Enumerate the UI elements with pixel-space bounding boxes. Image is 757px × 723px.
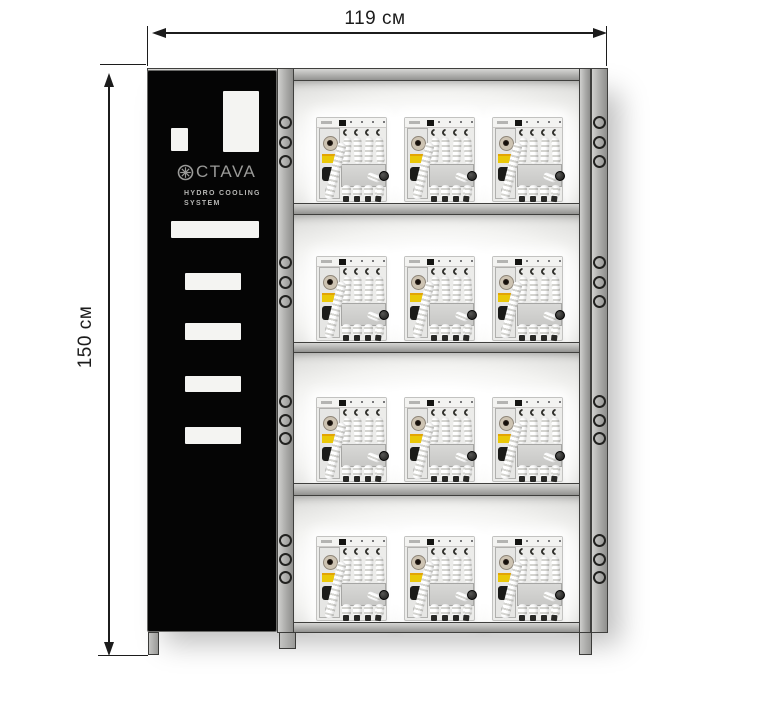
rack-bay bbox=[294, 81, 579, 203]
hose-fitting bbox=[463, 196, 470, 203]
valve-knob bbox=[467, 171, 477, 181]
hose-fitting bbox=[365, 615, 371, 621]
coil-hose-bottom bbox=[374, 185, 384, 199]
coil-hose-top bbox=[452, 276, 461, 303]
valve-knob bbox=[467, 451, 477, 461]
coil-hose-top bbox=[540, 137, 549, 164]
hose-fitting bbox=[453, 615, 459, 621]
top-rivet bbox=[361, 540, 363, 542]
top-rivet bbox=[526, 540, 528, 542]
coil-hose-bottom bbox=[540, 324, 549, 337]
coil-hose-bottom bbox=[364, 604, 373, 617]
hose-fitting bbox=[375, 335, 382, 342]
top-rivet bbox=[460, 540, 462, 542]
mounting-hole bbox=[593, 276, 606, 289]
mounting-hole bbox=[279, 136, 292, 149]
valve-knob bbox=[555, 171, 565, 181]
hose-fitting bbox=[551, 196, 558, 203]
hose-fitting bbox=[519, 335, 525, 341]
vent-slot bbox=[185, 427, 241, 444]
coil-symbol bbox=[353, 267, 363, 277]
coil-hose-bottom bbox=[430, 604, 439, 617]
top-rivet bbox=[361, 401, 363, 403]
coil-hose-bottom bbox=[342, 185, 351, 198]
valve-knob bbox=[379, 451, 389, 461]
width-dimension-line bbox=[158, 32, 598, 34]
rack-post-left bbox=[277, 68, 294, 633]
coil-hose-top bbox=[463, 417, 473, 444]
coil-hose-bottom bbox=[550, 465, 560, 479]
coil-hose-bottom bbox=[540, 185, 549, 198]
coil-hose-top bbox=[364, 417, 373, 444]
top-rivet bbox=[383, 260, 385, 262]
coil-hose-bottom bbox=[452, 604, 461, 617]
top-rivet bbox=[526, 260, 528, 262]
valve-knob bbox=[467, 310, 477, 320]
coil-hose-top bbox=[540, 556, 549, 583]
top-rivet bbox=[449, 260, 451, 262]
equipment-rack bbox=[0, 0, 757, 723]
coil-hose-bottom bbox=[430, 324, 439, 337]
coil-hose-bottom bbox=[550, 604, 560, 618]
coil-hose-top bbox=[551, 137, 561, 164]
hose-fitting bbox=[541, 615, 547, 621]
coil-symbol bbox=[540, 267, 550, 277]
coil-hose-top bbox=[375, 137, 385, 164]
hose-fitting bbox=[365, 476, 371, 482]
rack-shelf bbox=[277, 342, 608, 353]
top-rivet bbox=[526, 121, 528, 123]
unit-top-marking bbox=[497, 260, 508, 263]
valve-knob bbox=[379, 310, 389, 320]
valve-knob bbox=[555, 451, 565, 461]
coil-hose-bottom bbox=[430, 465, 439, 478]
coil-symbol bbox=[441, 128, 451, 138]
unit-top-marking bbox=[409, 540, 420, 543]
height-arrowhead-bottom bbox=[104, 642, 114, 661]
coil-symbol bbox=[441, 408, 451, 418]
mounting-hole bbox=[279, 432, 292, 445]
diagram-canvas: CTAVA HYDRO COOLING SYSTEM 119 см 150 см bbox=[0, 0, 757, 723]
hose-fitting bbox=[343, 335, 349, 341]
hose-fitting bbox=[354, 196, 360, 202]
coil-symbol bbox=[540, 547, 550, 557]
hose-fitting bbox=[343, 615, 349, 621]
coil-hose-top bbox=[353, 276, 362, 303]
unit-top-marking bbox=[409, 260, 420, 263]
coil-hose-top bbox=[463, 137, 473, 164]
coil-symbol bbox=[529, 408, 539, 418]
coil-hose-bottom bbox=[518, 604, 527, 617]
coil-hose-bottom bbox=[441, 185, 450, 198]
coil-hose-top bbox=[529, 417, 538, 444]
coil-symbol bbox=[529, 547, 539, 557]
mounting-hole bbox=[279, 276, 292, 289]
mounting-hole bbox=[593, 256, 606, 269]
coil-hose-bottom bbox=[342, 465, 351, 478]
hose-fitting bbox=[365, 196, 371, 202]
rack-leg bbox=[279, 632, 296, 649]
data-port bbox=[339, 400, 346, 406]
top-rivet bbox=[383, 121, 385, 123]
top-rivet bbox=[372, 401, 374, 403]
top-rivet bbox=[449, 121, 451, 123]
valve-knob bbox=[555, 310, 565, 320]
rack-shelf bbox=[277, 483, 608, 496]
mounting-hole bbox=[593, 534, 606, 547]
coil-hose-top bbox=[540, 417, 549, 444]
top-rivet bbox=[537, 401, 539, 403]
hose-fitting bbox=[530, 335, 536, 341]
top-rivet bbox=[471, 260, 473, 262]
coil-hose-bottom bbox=[364, 185, 373, 198]
coil-hose-bottom bbox=[462, 185, 472, 199]
top-rivet bbox=[460, 260, 462, 262]
top-rivet bbox=[537, 260, 539, 262]
data-port bbox=[427, 259, 434, 265]
coil-hose-bottom bbox=[452, 324, 461, 337]
coil-hose-top bbox=[375, 556, 385, 583]
hose-fitting bbox=[541, 196, 547, 202]
top-rivet bbox=[350, 401, 352, 403]
top-rivet bbox=[471, 540, 473, 542]
cooling-unit bbox=[316, 397, 387, 482]
coil-symbol bbox=[452, 128, 462, 138]
hose-fitting bbox=[431, 615, 437, 621]
coil-symbol bbox=[353, 547, 363, 557]
coil-hose-bottom bbox=[441, 465, 450, 478]
hose-fitting bbox=[354, 476, 360, 482]
hose-fitting bbox=[442, 196, 448, 202]
top-rivet bbox=[350, 260, 352, 262]
coil-hose-bottom bbox=[441, 324, 450, 337]
rack-bottom-rail bbox=[277, 622, 608, 633]
hose-fitting bbox=[453, 335, 459, 341]
hose-fitting bbox=[442, 476, 448, 482]
data-port bbox=[515, 259, 522, 265]
cooling-unit bbox=[492, 397, 563, 482]
hose-fitting bbox=[519, 615, 525, 621]
coil-hose-bottom bbox=[353, 185, 362, 198]
coil-symbol bbox=[364, 128, 374, 138]
mounting-hole bbox=[279, 116, 292, 129]
coil-symbol bbox=[353, 128, 363, 138]
coil-hose-bottom bbox=[529, 185, 538, 198]
coil-symbol bbox=[364, 547, 374, 557]
vent-slot bbox=[185, 273, 241, 290]
coil-hose-bottom bbox=[452, 185, 461, 198]
data-port bbox=[427, 400, 434, 406]
rack-shelf bbox=[277, 203, 608, 215]
coil-hose-bottom bbox=[452, 465, 461, 478]
mounting-hole bbox=[279, 295, 292, 308]
top-rivet bbox=[537, 540, 539, 542]
mounting-hole bbox=[279, 534, 292, 547]
coil-symbol bbox=[441, 267, 451, 277]
coil-hose-bottom bbox=[462, 604, 472, 618]
coil-hose-top bbox=[452, 137, 461, 164]
hose-fitting bbox=[343, 476, 349, 482]
coil-hose-bottom bbox=[374, 604, 384, 618]
mounting-hole bbox=[593, 116, 606, 129]
cooling-unit bbox=[316, 256, 387, 341]
top-rivet bbox=[449, 401, 451, 403]
rack-leg bbox=[148, 632, 159, 655]
mounting-hole bbox=[279, 256, 292, 269]
hose-fitting bbox=[431, 196, 437, 202]
hose-fitting bbox=[551, 615, 558, 622]
control-cabinet: CTAVA HYDRO COOLING SYSTEM bbox=[147, 70, 277, 632]
data-port bbox=[427, 120, 434, 126]
cooling-unit bbox=[404, 536, 475, 621]
data-port bbox=[515, 539, 522, 545]
coil-symbol bbox=[452, 547, 462, 557]
mounting-hole bbox=[593, 414, 606, 427]
coil-symbol bbox=[540, 408, 550, 418]
mounting-hole bbox=[593, 432, 606, 445]
top-rivet bbox=[460, 121, 462, 123]
top-rivet bbox=[537, 121, 539, 123]
unit-top-marking bbox=[321, 540, 332, 543]
hose-fitting bbox=[530, 476, 536, 482]
data-port bbox=[339, 539, 346, 545]
coil-hose-bottom bbox=[529, 465, 538, 478]
rack-bay bbox=[294, 353, 579, 483]
coil-hose-top bbox=[441, 137, 450, 164]
top-rivet bbox=[350, 540, 352, 542]
coil-hose-top bbox=[452, 417, 461, 444]
mounting-hole bbox=[279, 571, 292, 584]
hose-fitting bbox=[541, 476, 547, 482]
valve-knob bbox=[379, 590, 389, 600]
cabinet-subtitle-line1: HYDRO COOLING bbox=[184, 190, 261, 197]
cooling-unit bbox=[404, 117, 475, 202]
coil-hose-top bbox=[364, 556, 373, 583]
coil-hose-bottom bbox=[518, 465, 527, 478]
coil-hose-top bbox=[441, 556, 450, 583]
hose-fitting bbox=[431, 476, 437, 482]
coil-hose-bottom bbox=[430, 185, 439, 198]
coil-hose-bottom bbox=[540, 465, 549, 478]
top-rivet bbox=[559, 121, 561, 123]
top-rivet bbox=[438, 540, 440, 542]
height-extension-bottom bbox=[98, 655, 148, 656]
width-dimension-label: 119 см bbox=[280, 8, 470, 30]
coil-hose-bottom bbox=[364, 465, 373, 478]
coil-hose-top bbox=[441, 276, 450, 303]
unit-top-marking bbox=[497, 401, 508, 404]
coil-hose-bottom bbox=[518, 324, 527, 337]
hose-fitting bbox=[453, 196, 459, 202]
coil-symbol bbox=[452, 267, 462, 277]
coil-hose-top bbox=[353, 417, 362, 444]
top-rivet bbox=[449, 540, 451, 542]
data-port bbox=[515, 400, 522, 406]
coil-symbol bbox=[364, 408, 374, 418]
hose-fitting bbox=[551, 335, 558, 342]
coil-hose-top bbox=[551, 276, 561, 303]
cooling-unit bbox=[316, 117, 387, 202]
rack-bay bbox=[294, 496, 579, 622]
hose-fitting bbox=[519, 196, 525, 202]
top-rivet bbox=[559, 401, 561, 403]
hose-fitting bbox=[343, 196, 349, 202]
coil-hose-top bbox=[364, 137, 373, 164]
hose-fitting bbox=[354, 615, 360, 621]
hose-fitting bbox=[463, 615, 470, 622]
top-rivet bbox=[372, 260, 374, 262]
hose-fitting bbox=[530, 196, 536, 202]
mounting-hole bbox=[593, 553, 606, 566]
coil-hose-bottom bbox=[540, 604, 549, 617]
coil-hose-top bbox=[551, 417, 561, 444]
top-rivet bbox=[372, 121, 374, 123]
valve-knob bbox=[555, 590, 565, 600]
cabinet-subtitle-line2: SYSTEM bbox=[184, 200, 221, 207]
rack-post-right-outer bbox=[591, 68, 608, 633]
coil-hose-bottom bbox=[342, 604, 351, 617]
coil-hose-bottom bbox=[441, 604, 450, 617]
rack-leg bbox=[579, 632, 592, 655]
top-rivet bbox=[471, 401, 473, 403]
coil-hose-bottom bbox=[374, 465, 384, 479]
coil-hose-top bbox=[463, 556, 473, 583]
hose-fitting bbox=[442, 615, 448, 621]
top-rivet bbox=[372, 540, 374, 542]
valve-knob bbox=[467, 590, 477, 600]
coil-hose-top bbox=[375, 276, 385, 303]
top-rivet bbox=[559, 260, 561, 262]
coil-symbol bbox=[452, 408, 462, 418]
mounting-hole bbox=[593, 395, 606, 408]
top-rivet bbox=[548, 121, 550, 123]
coil-symbol bbox=[353, 408, 363, 418]
data-port bbox=[339, 259, 346, 265]
height-dimension-label: 150 см bbox=[75, 277, 97, 397]
coil-hose-top bbox=[529, 556, 538, 583]
vent-slot bbox=[171, 221, 259, 238]
coil-hose-bottom bbox=[529, 324, 538, 337]
top-rivet bbox=[526, 401, 528, 403]
top-rivet bbox=[438, 401, 440, 403]
hose-fitting bbox=[463, 335, 470, 342]
coil-hose-top bbox=[529, 137, 538, 164]
coil-hose-top bbox=[353, 137, 362, 164]
coil-hose-top bbox=[463, 276, 473, 303]
top-rivet bbox=[361, 121, 363, 123]
hose-fitting bbox=[463, 476, 470, 483]
width-arrowhead-left bbox=[147, 28, 166, 38]
unit-top-marking bbox=[321, 260, 332, 263]
mounting-hole bbox=[279, 414, 292, 427]
coil-symbol bbox=[540, 128, 550, 138]
unit-top-marking bbox=[409, 401, 420, 404]
mounting-hole bbox=[279, 553, 292, 566]
top-rivet bbox=[548, 401, 550, 403]
cooling-unit bbox=[492, 536, 563, 621]
cooling-unit bbox=[492, 117, 563, 202]
coil-hose-top bbox=[540, 276, 549, 303]
vent-slot bbox=[185, 323, 241, 340]
top-rivet bbox=[460, 401, 462, 403]
data-port bbox=[427, 539, 434, 545]
hose-fitting bbox=[530, 615, 536, 621]
coil-hose-bottom bbox=[353, 324, 362, 337]
coil-hose-top bbox=[452, 556, 461, 583]
rack-bay bbox=[294, 215, 579, 342]
rack-post-right-inner bbox=[579, 68, 591, 633]
width-arrowhead-right bbox=[593, 28, 612, 38]
data-port bbox=[515, 120, 522, 126]
coil-hose-bottom bbox=[353, 604, 362, 617]
coil-hose-bottom bbox=[342, 324, 351, 337]
hose-fitting bbox=[453, 476, 459, 482]
coil-hose-bottom bbox=[462, 465, 472, 479]
coil-symbol bbox=[364, 267, 374, 277]
coil-hose-bottom bbox=[353, 465, 362, 478]
top-rivet bbox=[471, 121, 473, 123]
top-rivet bbox=[383, 401, 385, 403]
vent-slot bbox=[185, 376, 241, 392]
top-rivet bbox=[350, 121, 352, 123]
top-rivet bbox=[383, 540, 385, 542]
vent-slot bbox=[223, 91, 259, 152]
hose-fitting bbox=[431, 335, 437, 341]
hose-fitting bbox=[375, 476, 382, 483]
cooling-unit bbox=[404, 397, 475, 482]
hose-fitting bbox=[541, 335, 547, 341]
top-rivet bbox=[559, 540, 561, 542]
brand-logo: CTAVA bbox=[177, 162, 256, 182]
unit-top-marking bbox=[321, 401, 332, 404]
coil-hose-top bbox=[375, 417, 385, 444]
unit-top-marking bbox=[321, 121, 332, 124]
hose-fitting bbox=[442, 335, 448, 341]
width-extension-left bbox=[147, 26, 148, 66]
coil-hose-top bbox=[353, 556, 362, 583]
coil-hose-bottom bbox=[529, 604, 538, 617]
unit-top-marking bbox=[497, 540, 508, 543]
mounting-hole bbox=[593, 136, 606, 149]
coil-hose-top bbox=[364, 276, 373, 303]
hose-fitting bbox=[551, 476, 558, 483]
top-rivet bbox=[548, 540, 550, 542]
coil-symbol bbox=[441, 547, 451, 557]
coil-hose-bottom bbox=[550, 185, 560, 199]
vent-slot bbox=[171, 128, 188, 151]
unit-top-marking bbox=[409, 121, 420, 124]
hose-fitting bbox=[519, 476, 525, 482]
hose-fitting bbox=[375, 615, 382, 622]
cooling-unit bbox=[404, 256, 475, 341]
unit-top-marking bbox=[497, 121, 508, 124]
mounting-hole bbox=[593, 571, 606, 584]
mounting-hole bbox=[279, 395, 292, 408]
cooling-unit bbox=[316, 536, 387, 621]
coil-hose-bottom bbox=[462, 324, 472, 338]
coil-hose-bottom bbox=[364, 324, 373, 337]
top-rivet bbox=[361, 260, 363, 262]
fan-logo-icon bbox=[177, 164, 194, 181]
coil-hose-top bbox=[529, 276, 538, 303]
coil-hose-bottom bbox=[518, 185, 527, 198]
data-port bbox=[339, 120, 346, 126]
height-extension-top bbox=[100, 64, 146, 65]
coil-symbol bbox=[529, 128, 539, 138]
height-dimension-line bbox=[108, 78, 110, 646]
mounting-hole bbox=[279, 155, 292, 168]
cooling-unit bbox=[492, 256, 563, 341]
